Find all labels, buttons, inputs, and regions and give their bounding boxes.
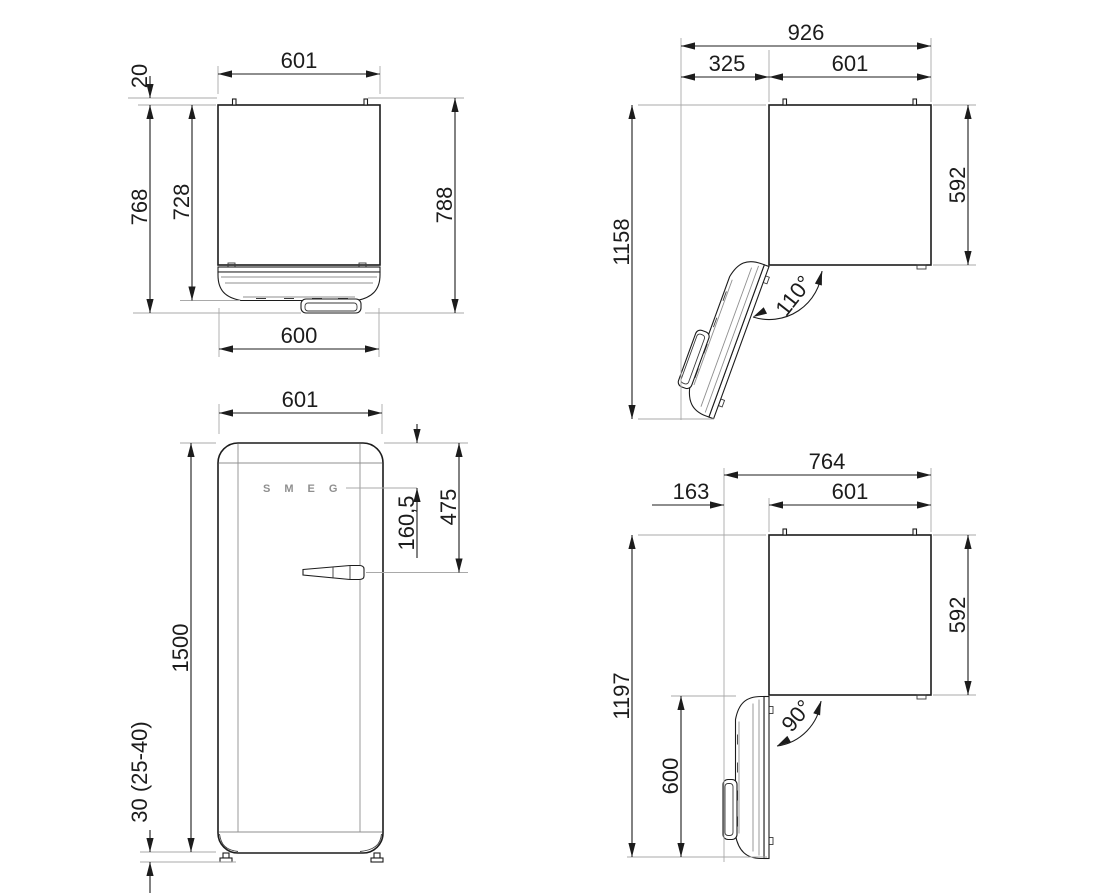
- view-plan-open-110: 110° 926 325 601 1158 592: [609, 20, 976, 420]
- dim-open110-total-width: 926: [788, 20, 825, 45]
- dim-plan-depth-total: 788: [432, 187, 457, 224]
- hinge-pin-left: [233, 99, 237, 105]
- dim-front-logo-offset: 160,5: [394, 495, 419, 550]
- dim-open90-handle-clearance: 163: [673, 479, 710, 504]
- hinge-pin-right: [913, 529, 917, 535]
- view-top-plan-closed: 601 20 768 728 788 600: [127, 48, 464, 357]
- hinge-pin-right: [364, 99, 368, 105]
- dim-plan-pin-offset: 20: [127, 64, 152, 88]
- cabinet-front-outline: [218, 443, 383, 853]
- door-closed: [218, 263, 380, 313]
- dim-plan-depth-handle: 768: [127, 189, 152, 226]
- dim-plan-width: 601: [281, 48, 318, 73]
- cabinet-top-outline: [769, 535, 931, 695]
- dim-open110-door-swing: 325: [709, 51, 746, 76]
- door-open-90: [723, 697, 773, 859]
- dim-open90-total-depth: 1197: [609, 672, 634, 719]
- hinge-pin-right: [913, 99, 917, 105]
- hinge-pin-left: [783, 529, 787, 535]
- dim-open110-width: 601: [832, 51, 869, 76]
- brand-logo: SMEG: [263, 483, 351, 495]
- view-front: SMEG 601 1500 30 (25-40) 160,5 475: [127, 387, 468, 893]
- technical-drawing-page: 601 20 768 728 788 600 SMEG 6: [0, 0, 1111, 893]
- dim-open90-door-depth: 600: [658, 758, 683, 795]
- hinge-pin-left: [783, 99, 787, 105]
- cabinet-top-outline: [769, 105, 931, 265]
- view-plan-open-90: 90° 764 163 601 1197 600 592: [609, 449, 976, 862]
- dim-front-height: 1500: [168, 624, 193, 673]
- dim-front-feet: 30 (25-40): [127, 721, 152, 823]
- dim-open110-body-depth: 592: [945, 167, 970, 204]
- cabinet-top-outline: [218, 105, 380, 265]
- dim-plan-depth-body: 728: [169, 184, 194, 221]
- dim-plan-door-width: 600: [281, 323, 318, 348]
- dim-front-handle-offset: 475: [436, 489, 461, 526]
- dim-open90-angle: 90°: [776, 695, 817, 737]
- dim-open90-width: 601: [832, 479, 869, 504]
- dim-open110-total-depth: 1158: [609, 218, 634, 265]
- dim-open90-total-width: 764: [809, 449, 846, 474]
- dim-open90-body-depth: 592: [945, 597, 970, 634]
- door-open-110: [670, 251, 772, 420]
- feet: [220, 853, 383, 862]
- dim-front-width: 601: [282, 387, 319, 412]
- refrigerator-dimension-drawing: 601 20 768 728 788 600 SMEG 6: [0, 0, 1111, 893]
- dim-open110-angle: 110°: [770, 271, 817, 321]
